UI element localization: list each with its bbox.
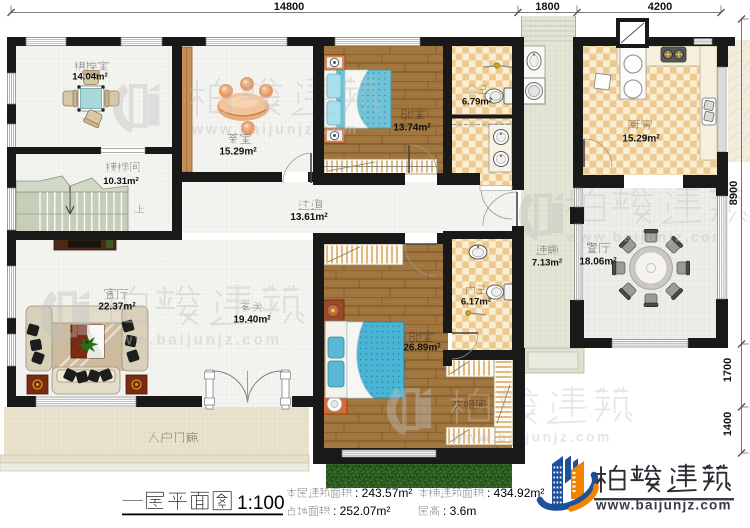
svg-text:1700: 1700 <box>722 358 734 382</box>
svg-text:www.baijunjz.com: www.baijunjz.com <box>566 228 727 244</box>
svg-text:15.29m2: 15.29m2 <box>622 134 660 145</box>
svg-text:4200: 4200 <box>648 1 672 13</box>
svg-text:www.baijunjz.com: www.baijunjz.com <box>105 332 282 349</box>
svg-text:22.37m2: 22.37m2 <box>98 302 136 313</box>
svg-text:19.40m2: 19.40m2 <box>233 315 271 326</box>
svg-text:: 3.6m: : 3.6m <box>443 504 476 518</box>
svg-text:7.13m2: 7.13m2 <box>532 258 563 269</box>
svg-text:14800: 14800 <box>274 1 305 13</box>
svg-text:1:100: 1:100 <box>237 493 285 514</box>
svg-text:10.31m2: 10.31m2 <box>103 176 139 187</box>
svg-text:26.89m2: 26.89m2 <box>403 343 441 354</box>
svg-text:: 434.92m²: : 434.92m² <box>487 486 544 500</box>
svg-text:8900: 8900 <box>728 181 740 205</box>
svg-text:15.29m2: 15.29m2 <box>219 147 257 158</box>
svg-text:6.17m2: 6.17m2 <box>461 297 492 308</box>
svg-text:1800: 1800 <box>535 1 559 13</box>
svg-text:www.baijunjz.com: www.baijunjz.com <box>451 428 612 444</box>
svg-text:18.06m2: 18.06m2 <box>579 257 617 268</box>
svg-text:: 243.57m²: : 243.57m² <box>355 486 412 500</box>
svg-text:14.04m2: 14.04m2 <box>72 72 108 83</box>
svg-text:13.61m2: 13.61m2 <box>290 212 328 223</box>
svg-text:www.baijunjz.com: www.baijunjz.com <box>595 498 732 513</box>
svg-text:www.baijunjz.com: www.baijunjz.com <box>191 122 359 138</box>
svg-text:6.79m2: 6.79m2 <box>462 97 493 108</box>
svg-text:1400: 1400 <box>722 412 734 436</box>
svg-text:: 252.07m²: : 252.07m² <box>333 504 390 518</box>
svg-text:13.74m2: 13.74m2 <box>393 123 431 134</box>
